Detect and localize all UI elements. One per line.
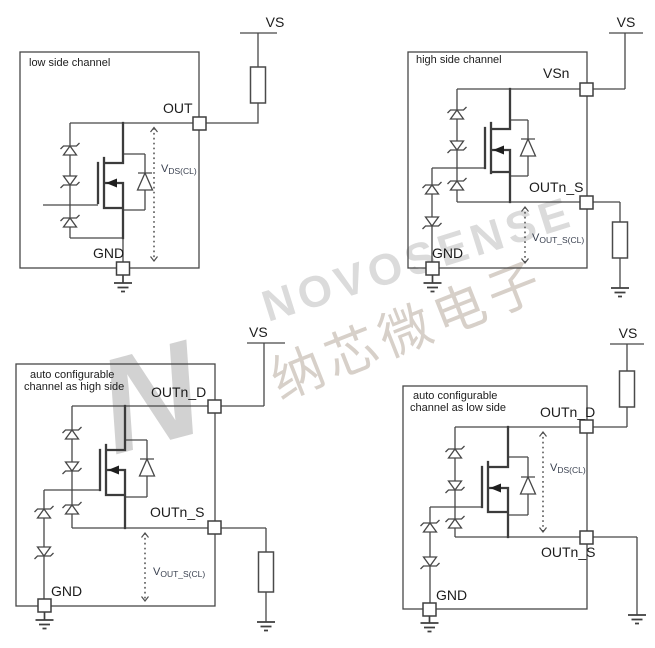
- circuit-diagram: N NOVOSENSE 纳芯微电子 low side channel VS OU…: [0, 0, 655, 648]
- circuit-title-line2: channel as high side: [24, 381, 124, 393]
- vsn-pin-label: VSn: [543, 65, 569, 81]
- body-diode: [521, 477, 536, 494]
- pin-square-out: [193, 117, 206, 130]
- load-resistor: [620, 371, 635, 407]
- ground-symbol-load: [257, 622, 275, 631]
- outn-s-pin-label: OUTn_S: [529, 179, 583, 195]
- mosfet-arrow-icon: [106, 179, 117, 188]
- outn-s-pin-label: OUTn_S: [150, 504, 204, 520]
- outn-s-pin-label: OUTn_S: [541, 544, 595, 560]
- vs-terminal-label: VS: [249, 324, 268, 340]
- pin-square-outn-d: [580, 420, 593, 433]
- circuit-low-side: low side channel VS OUT GND VDS(CL): [20, 14, 284, 292]
- circuit-title: high side channel: [416, 54, 502, 66]
- pin-square-outn-s: [208, 521, 221, 534]
- pin-square-gnd: [38, 599, 51, 612]
- ground-symbol-load: [611, 288, 629, 297]
- circuit-boundary: [20, 52, 199, 268]
- circuit-title-line1: auto configurable: [30, 369, 114, 381]
- pin-square-gnd: [117, 262, 130, 275]
- measure-subscript: OUT_S(CL): [160, 569, 205, 579]
- outn-d-pin-label: OUTn_D: [151, 384, 206, 400]
- gnd-pin-label: GND: [93, 245, 124, 261]
- pin-square-vsn: [580, 83, 593, 96]
- mosfet-arrow-icon: [108, 466, 119, 475]
- circuit-auto-low-side: auto configurable channel as low side VS…: [403, 325, 646, 632]
- pin-square-outn-d: [208, 400, 221, 413]
- wires: [430, 344, 644, 615]
- mosfet: [482, 427, 508, 537]
- pin-square-outn-s: [580, 196, 593, 209]
- zener-bars: [35, 427, 82, 559]
- outn-d-pin-label: OUTn_D: [540, 404, 595, 420]
- circuit-title-line1: auto configurable: [413, 390, 497, 402]
- out-pin-label: OUT: [163, 100, 193, 116]
- measure-subscript: OUT_S(CL): [539, 235, 584, 245]
- pin-square-gnd: [426, 262, 439, 275]
- vs-terminal-label: VS: [266, 14, 285, 30]
- measure-subscript: DS(CL): [557, 465, 586, 475]
- vds-measure-label: VDS(CL): [550, 462, 586, 475]
- mosfet-arrow-icon: [490, 484, 501, 493]
- vs-terminal-label: VS: [617, 14, 636, 30]
- pin-square-gnd: [423, 603, 436, 616]
- ground-symbol: [114, 275, 132, 292]
- gnd-pin-label: GND: [432, 245, 463, 261]
- mosfet-arrow-icon: [493, 146, 504, 155]
- ground-symbol: [36, 612, 54, 629]
- load-resistor: [251, 67, 266, 103]
- ground-symbol: [421, 616, 439, 632]
- mosfet: [98, 123, 123, 238]
- circuit-title-line2: channel as low side: [410, 402, 506, 414]
- gnd-pin-label: GND: [51, 583, 82, 599]
- watermark: N NOVOSENSE 纳芯微电子: [82, 187, 579, 483]
- vs-terminal-label: VS: [619, 325, 638, 341]
- schematic-page: N NOVOSENSE 纳芯微电子 low side channel VS OU…: [0, 0, 655, 648]
- vout-measure-label: VOUT_S(CL): [153, 566, 205, 579]
- pin-square-outn-s: [580, 531, 593, 544]
- mosfet: [485, 89, 510, 202]
- ground-symbol-right: [628, 615, 646, 624]
- circuit-title: low side channel: [29, 57, 110, 69]
- vds-measure-label: VDS(CL): [161, 163, 197, 176]
- measure-subscript: DS(CL): [168, 166, 197, 176]
- body-diode: [521, 139, 536, 156]
- gnd-pin-label: GND: [436, 587, 467, 603]
- load-resistor: [613, 222, 628, 258]
- load-resistor: [259, 552, 274, 592]
- body-diode: [138, 173, 153, 190]
